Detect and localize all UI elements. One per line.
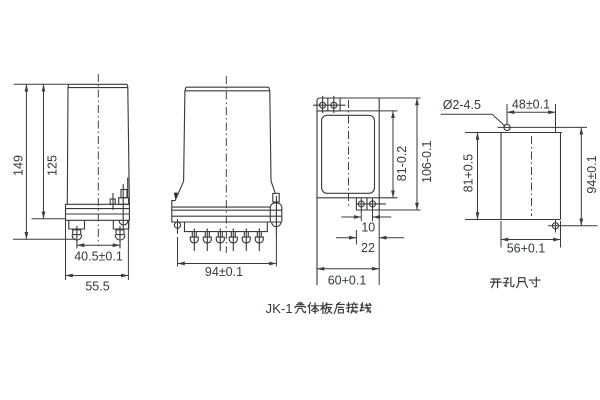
svg-text:60+0.1: 60+0.1 — [328, 274, 367, 288]
svg-text:55.5: 55.5 — [85, 280, 109, 294]
svg-text:81-0.2: 81-0.2 — [395, 146, 409, 181]
svg-text:40.5±0.1: 40.5±0.1 — [74, 249, 123, 263]
svg-text:22: 22 — [361, 241, 375, 255]
svg-text:10: 10 — [361, 221, 375, 235]
svg-text:149: 149 — [12, 155, 26, 176]
svg-text:Ø2-4.5: Ø2-4.5 — [443, 98, 481, 112]
svg-text:94±0.1: 94±0.1 — [585, 155, 599, 193]
svg-text:56+0.1: 56+0.1 — [507, 241, 546, 255]
svg-text:JK-1: JK-1 — [266, 301, 293, 316]
svg-text:94±0.1: 94±0.1 — [205, 265, 243, 279]
svg-text:125: 125 — [45, 155, 59, 176]
svg-text:48±0.1: 48±0.1 — [512, 98, 550, 112]
svg-text:106-0.1: 106-0.1 — [420, 141, 434, 183]
svg-text:81+0.5: 81+0.5 — [462, 154, 476, 193]
